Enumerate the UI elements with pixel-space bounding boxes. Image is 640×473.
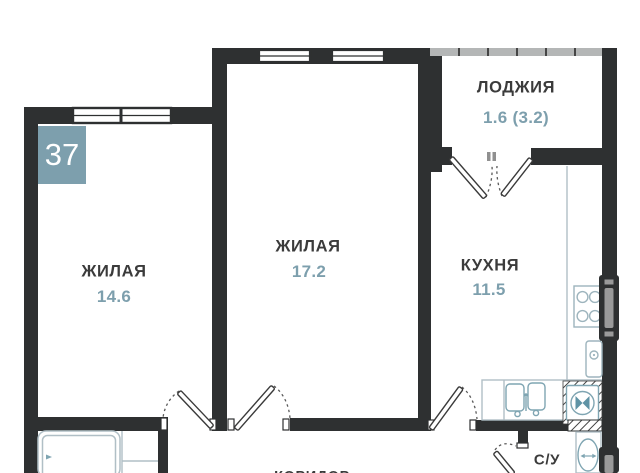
right-outer-wall <box>602 48 617 473</box>
room2-area: 17.2 <box>292 262 326 282</box>
room1-door-arc <box>163 391 179 418</box>
hatched-wall-segment <box>568 420 602 431</box>
room1-door-leaf-icon <box>177 390 214 428</box>
loggia-label: ЛОДЖИЯ <box>477 79 555 98</box>
stove-icon <box>574 286 602 327</box>
room2-window-right-icon <box>332 50 384 62</box>
floor-plan: 37 ЖИЛАЯ 14.6 ЖИЛАЯ 17.2 КУХНЯ 11.5 ЛОДЖ… <box>0 0 640 473</box>
kitchen-area: 11.5 <box>472 280 505 300</box>
kitchen-label: КУХНЯ <box>461 257 520 276</box>
room1-label: ЖИЛАЯ <box>81 263 146 282</box>
room2-door-arc <box>274 386 290 418</box>
radiator-bottom-icon <box>599 447 619 473</box>
loggia-glazing-icon <box>430 48 602 56</box>
bath-cabinet-icon <box>122 431 158 473</box>
rooms-divider-wall <box>212 48 227 431</box>
loggia-door-pivot-icon <box>487 152 496 161</box>
boiler-icon <box>586 341 602 377</box>
loggia-bottom-wall-right <box>531 148 602 165</box>
loggia-area: 1.6 (3.2) <box>483 108 549 128</box>
corridor-label: КОРИДОР <box>274 469 350 473</box>
kitchen-bottom-wall <box>476 420 568 431</box>
room2-window-left-icon <box>259 50 310 62</box>
su-door-arc <box>495 444 516 450</box>
room2-label: ЖИЛАЯ <box>275 238 340 257</box>
washing-machine-icon <box>563 381 602 424</box>
bathroom-label: С/У <box>534 452 560 469</box>
room1-area: 14.6 <box>97 287 131 307</box>
bathtub-icon <box>38 431 120 473</box>
unit-number-badge: 37 <box>38 126 86 184</box>
kitchen-door-arc <box>462 387 477 419</box>
room1-bottom-wall <box>38 417 168 431</box>
loggia-door-leaf-right-icon <box>501 157 533 196</box>
loggia-door-arc-left <box>486 166 492 197</box>
su-door-leaf-icon <box>493 451 515 473</box>
left-outer-wall <box>24 107 38 473</box>
kitchen-door-leaf-icon <box>429 386 463 430</box>
loggia-door-leaf-left-icon <box>449 156 487 199</box>
loggia-bottom-wall-left <box>430 147 452 165</box>
radiator-top-icon <box>599 275 619 341</box>
room1-window-icon <box>73 108 171 123</box>
kitchen-divider-wall <box>418 160 431 431</box>
floor-plan-drawing <box>0 0 640 473</box>
room2-top-wall <box>212 48 430 64</box>
room2-bottom-wall <box>290 418 427 431</box>
loggia-door-arc-right <box>497 166 502 196</box>
washbasin-icon <box>576 432 601 473</box>
room2-door-leaf-icon <box>234 385 275 430</box>
